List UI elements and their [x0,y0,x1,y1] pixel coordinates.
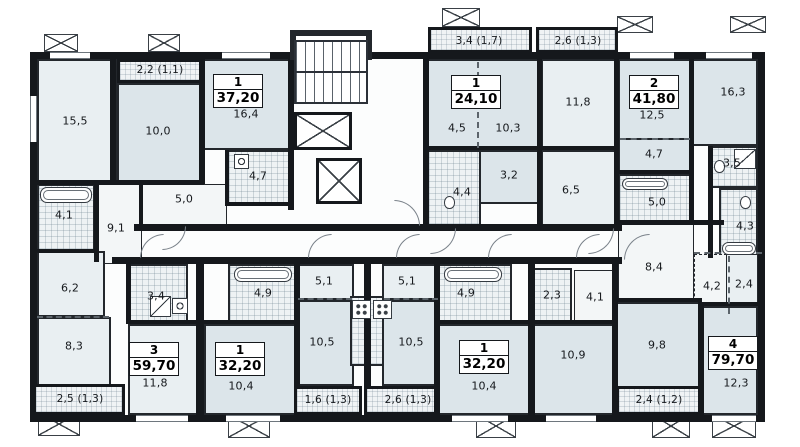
zone-divider [384,298,438,300]
wall [708,146,713,258]
apartment-rooms: 1 [216,343,264,358]
room-area-label: 4,3 [736,220,754,233]
window [222,52,270,59]
exterior-unit-marker [442,8,480,27]
bathtub-icon [40,187,92,203]
apartment-area: 32,20 [460,356,508,373]
stove-icon [352,300,371,319]
room-area-label: 4,7 [645,148,663,161]
apartment-badge: 1 32,20 [459,340,509,374]
room-area-label: 15,5 [62,115,87,128]
room-area-label: 2,3 [543,289,561,302]
wall [128,320,206,324]
room-area-label: 10,0 [145,125,170,138]
room-area-label: 10,4 [471,380,496,393]
bathtub-icon [444,267,502,282]
elevator-shaft [294,112,352,150]
wall [204,320,298,324]
room-area-label: 4,7 [249,170,267,183]
window [30,96,37,142]
wall [434,264,440,416]
balcony-area-label: 2,6 (1,3) [385,394,432,406]
room-area-label: 12,5 [639,109,664,122]
apartment-area: 79,70 [709,352,757,369]
zone-divider [37,316,109,318]
wall-corridor-top [134,224,622,231]
balcony-area-label: 2,2 (1,1) [137,64,184,76]
exterior-unit-marker [148,34,180,52]
window [712,415,756,422]
window [50,52,90,59]
room-area-label: 4,5 [448,122,466,135]
toilet-icon [740,196,751,209]
room-area-label: 16,3 [720,86,745,99]
wall [616,170,692,174]
wall [126,264,131,324]
room-area-label: 4,9 [457,287,475,300]
window [452,415,508,422]
exterior-unit-marker [730,16,766,33]
apartment-rooms: 3 [130,343,178,358]
wall [616,298,702,302]
wall [226,202,292,206]
apartment-badge: 1 37,20 [213,74,263,108]
room-area-label: 8,4 [645,261,663,274]
wall [528,264,535,416]
room-area-label: 10,5 [398,336,423,349]
elevator-shaft [316,158,362,204]
room-area-label: 3,5 [723,157,741,170]
room-area-label: 4,1 [586,291,604,304]
window [706,52,752,59]
bathtub-icon [622,178,668,190]
apartment-area: 37,20 [214,90,262,107]
wall [530,320,618,324]
balcony-area-label: 1,6 (1,3) [305,394,352,406]
apartment-badge: 1 32,20 [215,342,265,376]
room-area-label: 10,9 [560,349,585,362]
apartment-rooms: 1 [460,341,508,356]
room-area-label: 4,2 [703,280,721,293]
wall [37,180,204,185]
wall [541,146,617,150]
sink-icon [234,154,249,169]
room-area-label: 5,0 [175,193,193,206]
wall [110,52,116,185]
washer-icon [172,298,188,314]
floor-plan: 1 37,20 1 24,10 2 41,80 3 59,70 1 32,20 … [0,0,800,447]
wall [612,264,618,416]
wall [700,302,760,306]
balcony-area-label: 3,4 (1,7) [456,35,503,47]
window [226,415,280,422]
room-10-9 [532,324,618,415]
apartment-rooms: 1 [214,75,262,90]
window [630,52,674,59]
room-area-label: 5,0 [648,196,666,209]
room-area-label: 10,5 [309,336,334,349]
apartment-area: 24,10 [452,91,500,108]
wall [199,52,205,184]
stove-icon [373,300,392,319]
bathtub-icon [234,267,292,282]
room-area-label: 4,4 [453,186,471,199]
room-area-label: 9,1 [107,222,125,235]
room-area-label: 11,8 [565,96,590,109]
room-area-label: 2,4 [735,278,753,291]
wall [364,264,371,388]
wall-corridor-bottom [112,257,622,264]
apartment-rooms: 2 [630,76,678,91]
apartment-rooms: 1 [452,76,500,91]
room-area-label: 3,2 [500,169,518,182]
window [136,415,188,422]
room-area-label: 16,4 [233,108,258,121]
balcony-area-label: 2,4 (1,2) [636,394,683,406]
room-area-label: 8,3 [65,340,83,353]
wall [427,146,540,150]
wall [537,52,542,231]
room-area-label: 6,2 [61,282,79,295]
wall [423,52,429,231]
window [546,415,596,422]
room-area-label: 10,4 [228,380,253,393]
wall [225,150,229,206]
room-area-label: 5,1 [315,275,333,288]
zone-divider [728,256,730,314]
balcony-area-label: 2,6 (1,3) [555,35,602,47]
wall [614,52,619,224]
room-area-label: 4,9 [254,287,272,300]
room-area-label: 12,3 [723,377,748,390]
apartment-area: 32,20 [216,358,264,375]
exterior-unit-marker [617,16,653,33]
room-area-label: 4,1 [55,209,73,222]
zone-divider [298,298,352,300]
room-area-label: 11,8 [142,377,167,390]
room-area-label: 3,4 [147,290,165,303]
apartment-badge: 3 59,70 [129,342,179,376]
wall [139,184,143,224]
room-area-label: 10,3 [495,122,520,135]
staircase [294,40,368,104]
room-16-3 [692,59,758,146]
wall [37,249,95,253]
room-area-label: 5,1 [398,275,416,288]
bathtub-icon [722,242,756,255]
wall [196,264,204,416]
apartment-badge: 1 24,10 [451,75,501,109]
exterior-unit-marker [44,34,78,52]
apartment-area: 41,80 [630,91,678,108]
apartment-area: 59,70 [130,358,178,375]
wall [698,302,704,415]
room-area-label: 6,5 [562,184,580,197]
apartment-rooms: 4 [709,337,757,352]
wall [436,320,534,324]
wall [294,264,300,388]
room-area-label: 9,8 [648,339,666,352]
wall [616,220,724,225]
zone-divider [620,138,690,140]
apartment-badge: 2 41,80 [629,75,679,109]
balcony-area-label: 2,5 (1,3) [57,393,104,405]
apartment-badge: 4 79,70 [708,336,758,370]
